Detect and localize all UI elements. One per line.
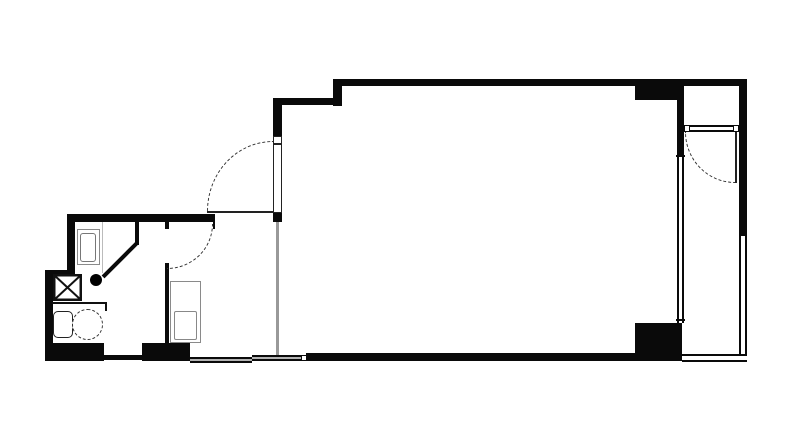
window-right xyxy=(739,236,747,354)
floor-plan-canvas xyxy=(0,0,787,443)
toilet-separator-lip xyxy=(105,302,107,311)
closet-divider xyxy=(684,125,739,132)
partition-entry-mainroom xyxy=(276,222,279,355)
wall-balcony-top xyxy=(677,79,684,155)
balcony-door-leaf xyxy=(735,132,737,183)
block-bottom-left xyxy=(45,343,104,361)
partition-lower xyxy=(165,263,169,348)
column-top xyxy=(635,79,678,100)
closet-divider-jamb-left xyxy=(684,125,690,132)
wall-entry-upper xyxy=(273,98,282,137)
wall-left-upper xyxy=(67,214,75,276)
entrance-door-swing-arc xyxy=(207,141,273,211)
shaft-x-box-icon xyxy=(53,274,82,301)
wall-bottom-main xyxy=(306,353,637,361)
entrance-door-frame-divider xyxy=(274,143,281,145)
window-bottom-1 xyxy=(190,357,252,363)
toilet-tank xyxy=(53,311,73,338)
window-bottom-2 xyxy=(252,355,306,361)
window-balcony-cap-top xyxy=(676,155,685,157)
toilet-bowl xyxy=(72,309,103,340)
wall-bathroom-top xyxy=(67,214,215,222)
entrance-door-open-leaf xyxy=(207,211,273,213)
wall-top-main xyxy=(333,79,747,86)
shower-screen-line xyxy=(102,222,103,273)
entrance-door-frame xyxy=(273,136,282,213)
window-balcony-cap-bottom xyxy=(676,319,685,321)
closet-divider-jamb-right xyxy=(733,125,739,132)
column-bottom-right xyxy=(635,323,682,361)
column-bottom-left xyxy=(142,343,190,361)
interior-door-jamb xyxy=(213,222,215,229)
window-bottom-jamb xyxy=(301,355,307,361)
kitchen-sink xyxy=(174,311,197,340)
toilet-separator-line xyxy=(52,302,107,304)
window-balcony xyxy=(677,155,684,323)
rail-bottom-right xyxy=(682,354,747,362)
wall-top-left xyxy=(273,98,338,105)
wall-right-upper xyxy=(739,79,747,236)
balcony-door-swing-arc xyxy=(685,132,735,183)
bathroom-door-diagonal xyxy=(102,242,139,279)
wall-bottom-thin xyxy=(104,355,142,360)
wash-basin-bowl xyxy=(80,233,96,262)
bathroom-door-knob-dot xyxy=(90,274,102,286)
interior-door-swing-arc xyxy=(167,224,213,269)
